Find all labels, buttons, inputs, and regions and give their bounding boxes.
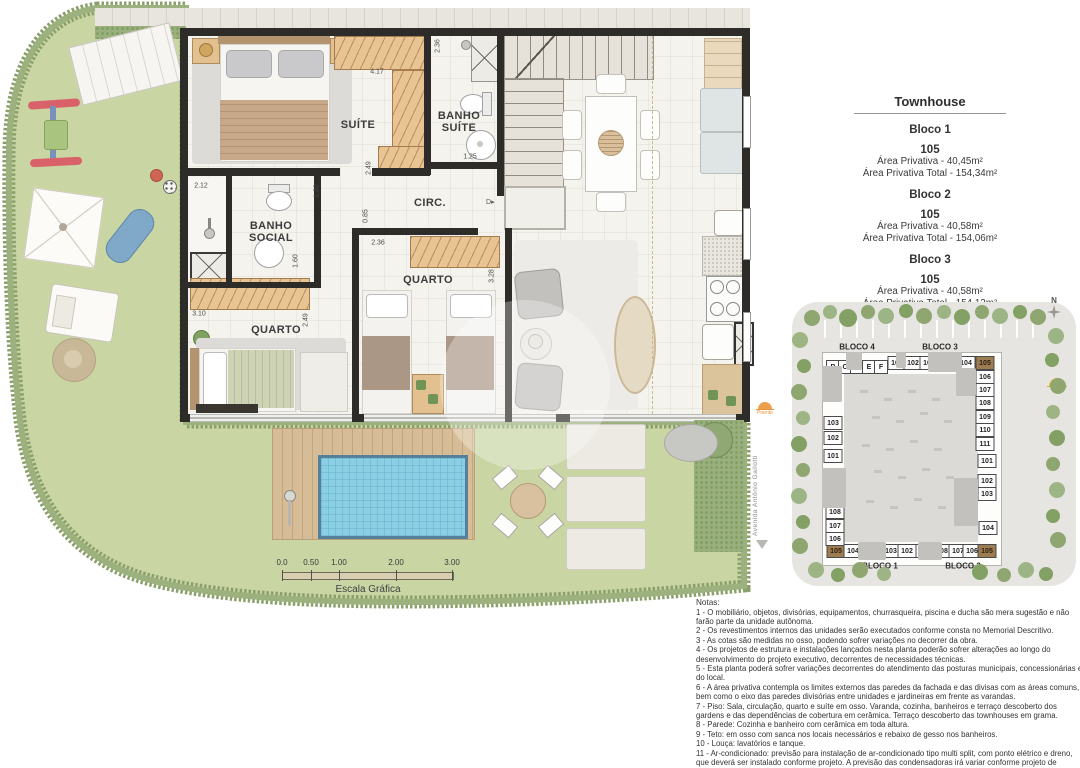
keyplan-unit-cell: 111 <box>976 437 995 451</box>
keyplan-tree <box>804 310 820 326</box>
keyplan-bloco-label: BLOCO 3 <box>922 343 958 352</box>
keyplan-court-mark <box>860 390 868 393</box>
keyplan-tree <box>878 308 894 324</box>
keyplan-tree <box>792 538 808 554</box>
notes-heading: Notas: <box>696 598 1080 608</box>
keyplan-unit-cell: 101 <box>978 454 997 468</box>
keyplan-tree <box>861 305 875 319</box>
keyplan-tree <box>1030 309 1046 325</box>
keyplan-unit-cell: 102 <box>824 431 843 445</box>
keyplan-court-mark <box>938 506 946 509</box>
keyplan-tree <box>792 332 808 348</box>
keyplan-court-mark <box>872 416 880 419</box>
keyplan-court-mark <box>944 420 952 423</box>
keyplan-building-wing <box>822 366 842 402</box>
keyplan-tree <box>1049 482 1065 498</box>
keyplan-unit-cell: 109 <box>976 410 995 424</box>
keyplan-unit-cell: 103 <box>824 416 843 430</box>
keyplan-unit-cell: 108 <box>976 396 995 410</box>
keyplan-court-mark <box>896 420 904 423</box>
north-indicator: N <box>1046 296 1062 319</box>
keyplan-building-wing <box>858 542 886 560</box>
note-item: 6 - A área privativa contempla os limite… <box>696 683 1080 702</box>
keyplan-tree <box>1050 532 1066 548</box>
keyplan-tree <box>1013 305 1027 319</box>
keyplan-bloco-label: BLOCO 4 <box>839 343 875 352</box>
keyplan-court-mark <box>920 412 928 415</box>
keyplan-court-mark <box>910 440 918 443</box>
notes-list: 1 - O mobiliário, objetos, divisórias, e… <box>696 608 1080 768</box>
keyplan-tree <box>852 562 868 578</box>
keyplan-court-mark <box>886 448 894 451</box>
keyplan-tree <box>1046 405 1060 419</box>
note-item: 1 - O mobiliário, objetos, divisórias, e… <box>696 608 1080 627</box>
keyplan-building-wing <box>956 368 976 396</box>
keyplan-unit-cell: 102 <box>898 544 917 558</box>
keyplan-tree <box>997 568 1011 582</box>
keyplan-court-mark <box>884 398 892 401</box>
keyplan-tree <box>899 304 913 318</box>
note-item: 3 - As cotas são medidas no osso, podend… <box>696 636 1080 645</box>
keyplan-tree <box>831 568 845 582</box>
note-item: 7 - Piso: Sala, circulação, quarto e suí… <box>696 702 1080 721</box>
keyplan-tree <box>791 488 807 504</box>
keyplan-court-mark <box>946 476 954 479</box>
keyplan-tree <box>1046 509 1060 523</box>
keyplan-tree <box>1049 430 1065 446</box>
keyplan-tree <box>1018 562 1034 578</box>
keyplan-tree <box>992 308 1008 324</box>
keyplan-tree <box>823 305 837 319</box>
keyplan-court-mark <box>914 498 922 501</box>
floorplan-sheet: D▸ Poente SUÍTEBANHO SUÍTECIRC.BANHO SOC… <box>0 0 1080 768</box>
keyplan-parking <box>824 320 1038 338</box>
keyplan-court-mark <box>866 500 874 503</box>
keyplan-court-mark <box>890 506 898 509</box>
keyplan-unit-cell: 102 <box>978 474 997 488</box>
keyplan-building-wing <box>918 542 942 560</box>
keyplan-tree <box>1048 328 1064 344</box>
keyplan-unit-cell: 106 <box>976 370 995 384</box>
keyplan-tree <box>796 515 810 529</box>
note-item: 8 - Parede: Cozinha e banheiro com cerâm… <box>696 720 1080 729</box>
keyplan-unit-cell: 105 <box>976 356 995 370</box>
keyplan-tree <box>954 309 970 325</box>
keyplan-court-mark <box>922 468 930 471</box>
keyplan-unit-cell: F <box>874 360 888 374</box>
keyplan-court-mark <box>932 398 940 401</box>
street-arrow-icon <box>756 540 768 549</box>
keyplan-tree <box>791 384 807 400</box>
note-item: 2 - Os revestimentos internos das unidad… <box>696 626 1080 635</box>
keyplan-tree <box>797 359 811 373</box>
street-label: Avenida Antônio Gallotti <box>752 428 759 536</box>
keyplan-tree <box>1039 567 1053 581</box>
keyplan-unit-cell: 107 <box>976 383 995 397</box>
keyplan-tree <box>796 411 810 425</box>
keyplan-tree <box>877 567 891 581</box>
keyplan-unit-cell: 103 <box>978 487 997 501</box>
keyplan-tree <box>796 463 810 477</box>
keyplan-building-wing <box>954 478 978 526</box>
keyplan-court-mark <box>898 476 906 479</box>
keyplan-tree <box>808 562 824 578</box>
note-item: 4 - Os projetos de estrutura e instalaçõ… <box>696 645 1080 664</box>
keyplan-tree <box>839 309 857 327</box>
keyplan-tree <box>975 305 989 319</box>
keyplan-building-wing <box>896 352 906 368</box>
keyplan-court-mark <box>862 444 870 447</box>
note-item: 11 - Ar-condicionado: previsão para inst… <box>696 749 1080 768</box>
keyplan-unit-cell: 107 <box>826 519 845 533</box>
keyplan-court-mark <box>874 470 882 473</box>
note-item: 10 - Louça: lavatórios e tanque. <box>696 739 1080 748</box>
compass-star-icon <box>1047 305 1061 319</box>
keyplan-court-mark <box>934 448 942 451</box>
note-item: 5 - Esta planta poderá sofrer variações … <box>696 664 1080 683</box>
keyplan-building-wing <box>822 468 846 508</box>
keyplan-tree <box>937 305 951 319</box>
keyplan-building-wing <box>846 352 862 370</box>
note-item: 9 - Teto: em osso com sanca nos locais n… <box>696 730 1080 739</box>
keyplan-tree <box>916 308 932 324</box>
keyplan-court-mark <box>908 390 916 393</box>
keyplan-unit-cell: 105 <box>978 544 997 558</box>
keyplan-unit-cell: 101 <box>824 449 843 463</box>
keyplan-tree <box>1045 353 1059 367</box>
keyplan-tree <box>1046 457 1060 471</box>
keyplan-unit-cell: 106 <box>826 532 845 546</box>
notes: Notas: 1 - O mobiliário, objetos, divisó… <box>696 598 1080 768</box>
keyplan-tree <box>972 564 988 580</box>
keyplan-tree <box>791 436 807 452</box>
keyplan-tree <box>1050 378 1066 394</box>
north-label: N <box>1046 296 1062 305</box>
keyplan-unit-cell: 104 <box>979 521 998 535</box>
keyplan-unit-cell: 110 <box>976 423 995 437</box>
